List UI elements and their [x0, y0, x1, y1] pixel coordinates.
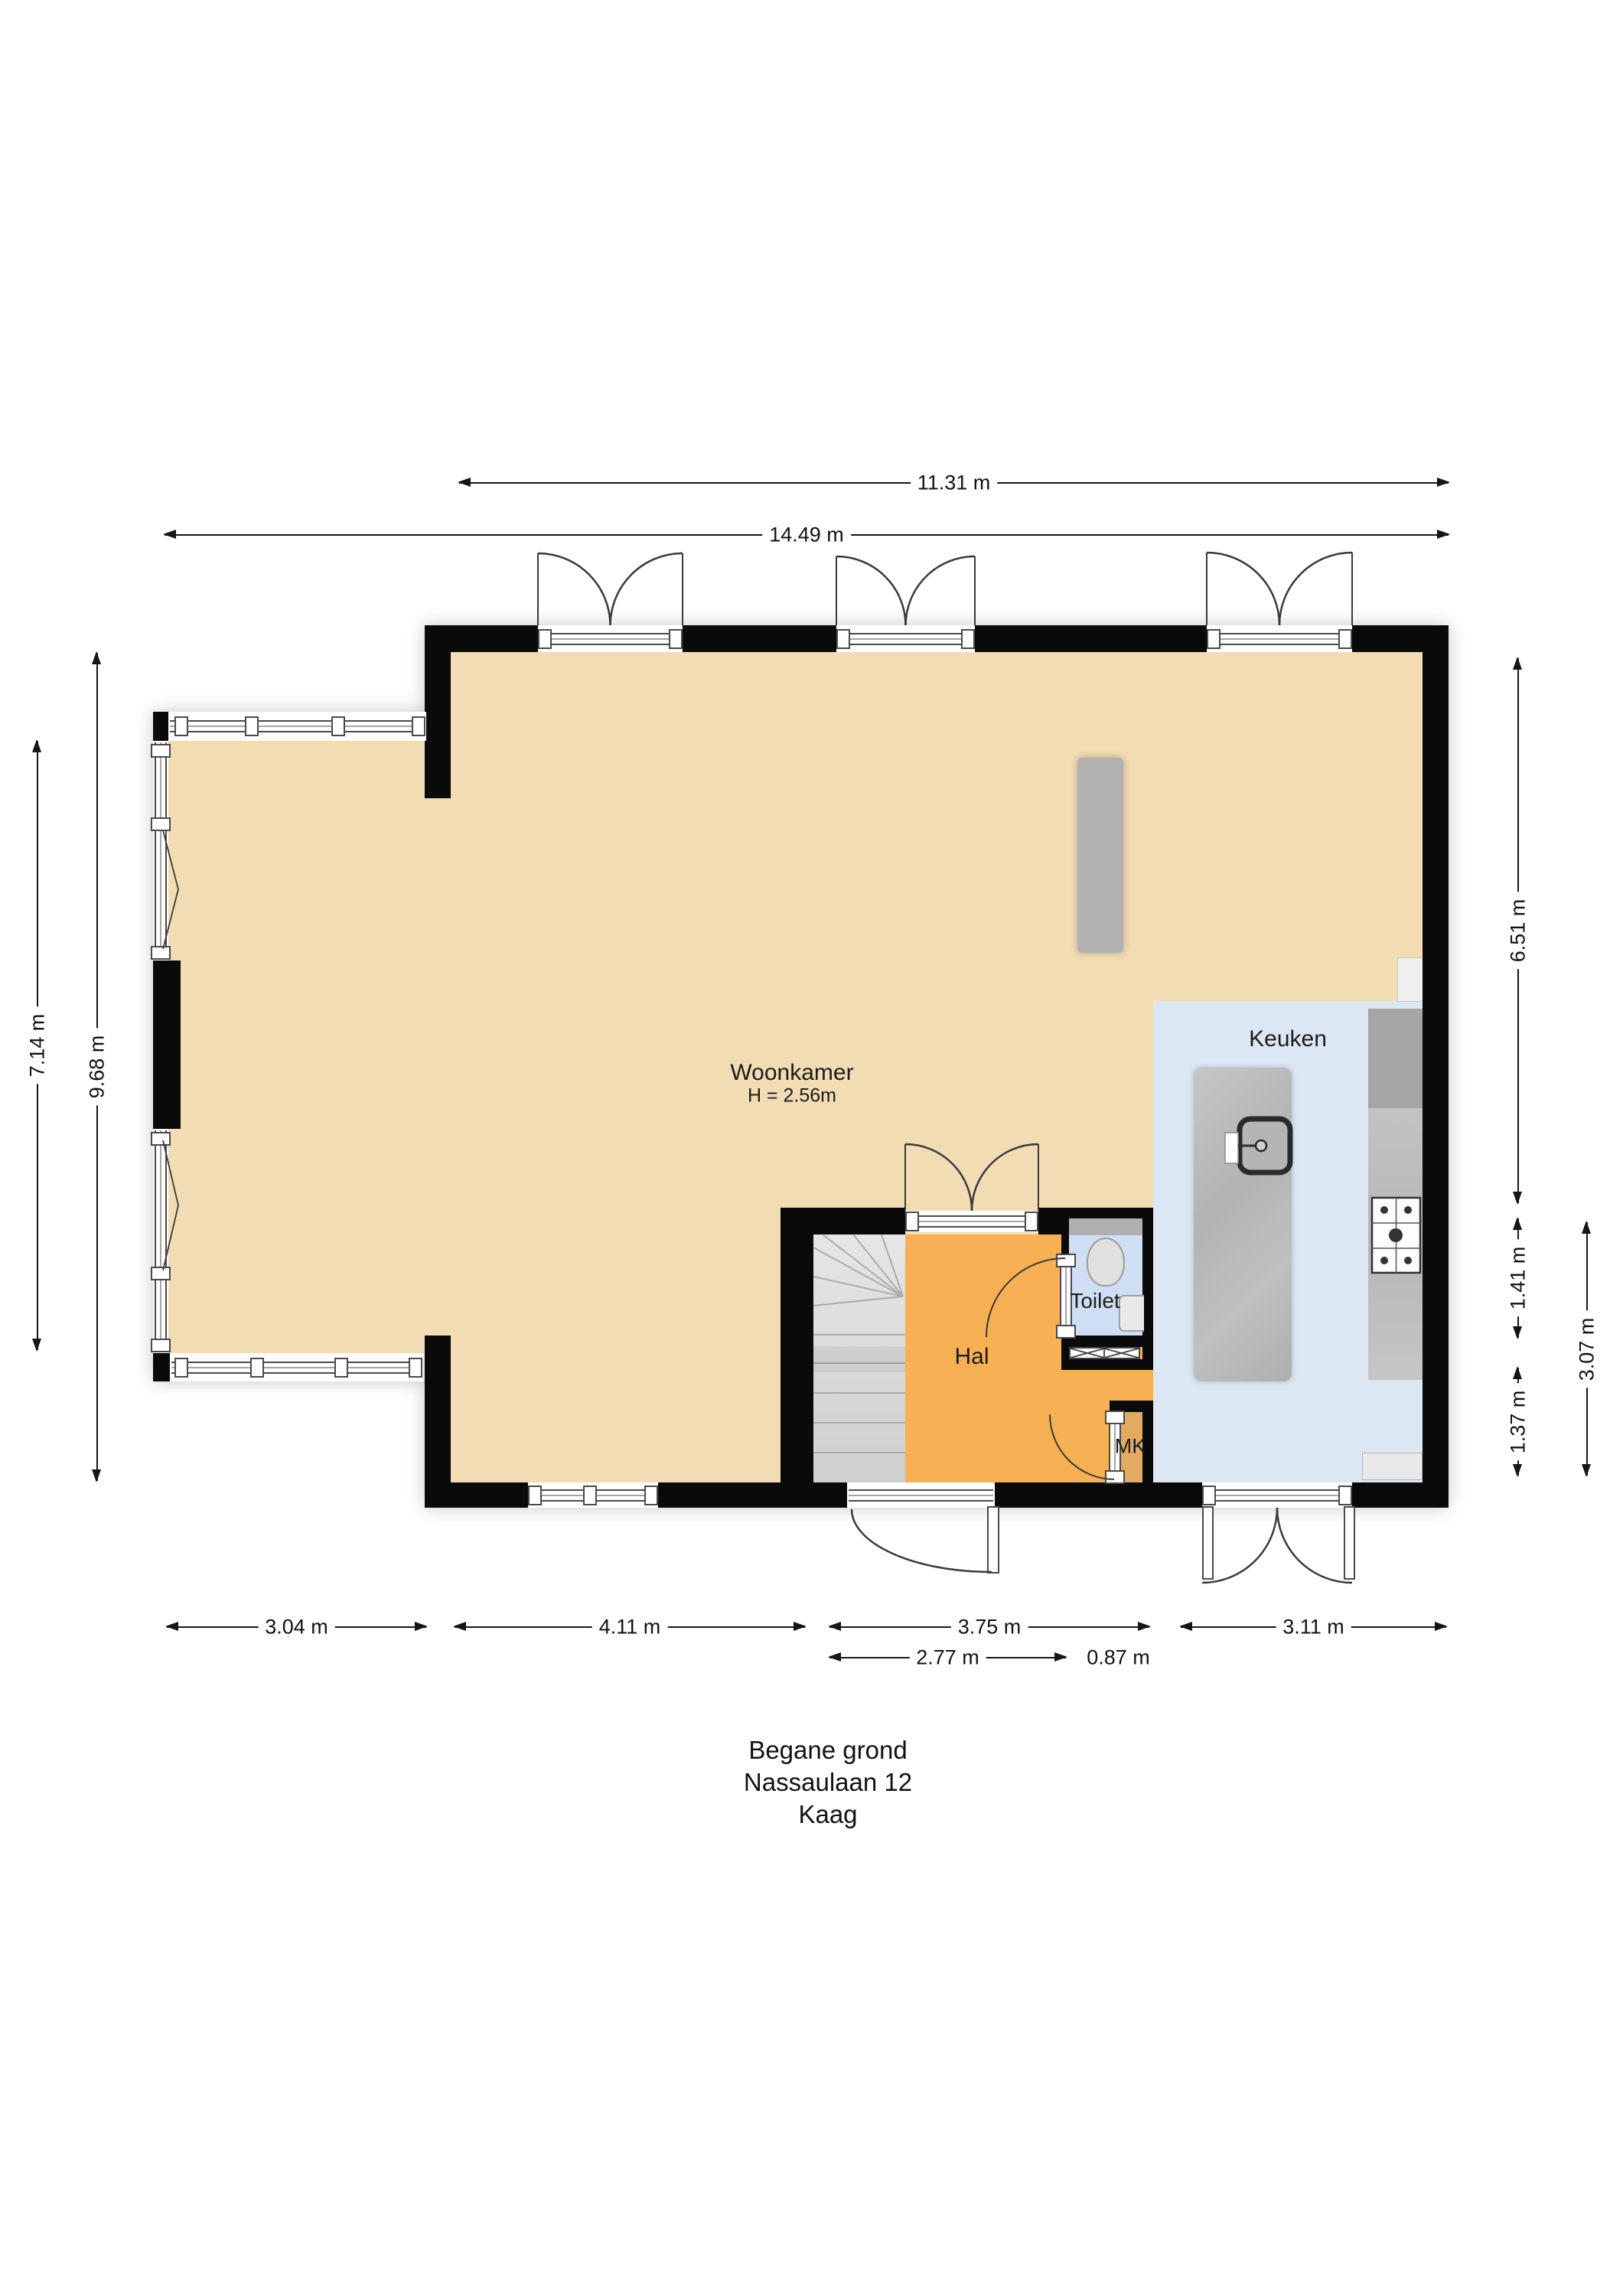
plan-city: Kaag — [798, 1800, 857, 1829]
annex-left-window-upper — [153, 741, 168, 960]
entrance-door-leaf — [987, 1506, 999, 1574]
window-glazing — [155, 742, 167, 959]
french-door-top-1 — [538, 625, 683, 652]
dimension-label: 0.87 m — [1080, 1645, 1157, 1671]
radiator — [1397, 957, 1424, 1002]
arrowhead — [453, 1622, 466, 1631]
woonkamer-label: Woonkamer — [730, 1060, 853, 1086]
fridge-counter — [1368, 1009, 1423, 1108]
toilet-door — [1061, 1255, 1071, 1337]
arrowhead — [92, 651, 101, 664]
arrowhead — [1054, 1652, 1067, 1662]
door-swing-arc — [1279, 553, 1352, 625]
arrowhead — [163, 530, 176, 539]
dimension-right-mid: 1.41 m — [1517, 1218, 1519, 1338]
window-mullion — [528, 1486, 542, 1505]
arrowhead — [1513, 1366, 1522, 1379]
arrowhead — [32, 1339, 41, 1352]
window-mullion — [409, 1358, 422, 1378]
window-mullion — [151, 1339, 171, 1352]
french-door-top-2 — [836, 625, 975, 652]
annex-floor — [168, 741, 451, 1353]
hal-top-wall-right — [1038, 1208, 1061, 1234]
door-jamb — [1056, 1254, 1076, 1267]
toilet-label: Toilet — [1070, 1289, 1119, 1313]
door-swing-arc — [611, 553, 683, 625]
arrowhead — [1513, 657, 1522, 670]
dimension-label: 7.14 m — [25, 1007, 51, 1084]
toilet-right-wall — [1142, 1208, 1153, 1370]
window-mullion — [334, 1358, 348, 1378]
annex-top-window — [168, 712, 426, 741]
dimension-label: 3.07 m — [1575, 1310, 1600, 1388]
dimension-label: 3.04 m — [258, 1615, 335, 1640]
french-door-bottom — [1202, 1482, 1352, 1508]
window-mullion — [583, 1486, 597, 1505]
hal-double-door — [905, 1211, 1038, 1232]
arrowhead — [415, 1622, 428, 1631]
door-swing-arc — [1277, 1508, 1352, 1583]
dimension-label: 11.31 m — [911, 471, 998, 496]
left-wall-lower — [425, 1336, 451, 1508]
dimension-label: 3.75 m — [951, 1615, 1028, 1640]
dimension-label: 6.51 m — [1506, 892, 1531, 970]
arrowhead — [1513, 1217, 1522, 1230]
window-mullion — [151, 946, 171, 960]
arrowhead — [1582, 1221, 1591, 1234]
arrowhead — [1513, 1192, 1522, 1205]
chimney-column — [1077, 758, 1123, 953]
mk-label: MK — [1115, 1435, 1146, 1459]
door-threshold — [1204, 1489, 1351, 1502]
window-mullion — [412, 716, 425, 736]
door-threshold — [849, 1489, 993, 1502]
arrowhead — [1513, 1326, 1522, 1339]
arrowhead — [1582, 1464, 1591, 1477]
window-mullion — [151, 1267, 171, 1280]
arrowhead — [458, 478, 471, 487]
door-threshold — [907, 1215, 1037, 1228]
toilet-lower-wall — [1061, 1359, 1142, 1370]
dimension-label: 4.11 m — [592, 1615, 668, 1640]
dimension-label: 14.49 m — [762, 523, 851, 548]
dimension-label: 1.41 m — [1506, 1240, 1531, 1317]
door-swing-arc — [852, 1509, 992, 1572]
toilet-bowl — [1087, 1238, 1125, 1287]
right-wall — [1423, 625, 1449, 1508]
arrowhead — [1179, 1622, 1192, 1631]
arrowhead — [1435, 1622, 1448, 1631]
dimension-bottom-sub-2: 0.87 m — [1081, 1657, 1155, 1658]
arrowhead — [1513, 1464, 1522, 1477]
plan-title: Begane grond — [748, 1736, 907, 1765]
arrowhead — [1437, 478, 1450, 487]
crawl-hatch — [1069, 1347, 1140, 1359]
dimension-bottom-sub-1: 2.77 m — [829, 1657, 1066, 1658]
dimension-left-inner: 7.14 m — [37, 741, 38, 1350]
door-jamb — [836, 629, 850, 649]
left-wall-upper — [425, 625, 451, 798]
floor-plan-page: Woonkamer H = 2.56m Keuken Hal Toilet MK… — [0, 0, 1623, 2296]
window-mullion — [151, 744, 171, 758]
french-door-leaf-left — [1202, 1506, 1214, 1580]
door-jamb — [1207, 629, 1221, 649]
door-jamb — [538, 629, 552, 649]
toilet-top-wall — [1061, 1208, 1153, 1218]
window-glazing — [170, 720, 425, 732]
window-mullion — [644, 1486, 658, 1505]
stairs-left-wall — [781, 1208, 813, 1482]
arrowhead — [32, 739, 41, 752]
annex-corner-bottom — [153, 1353, 170, 1381]
door-swing-arc — [538, 553, 611, 625]
door-jamb — [1338, 1486, 1352, 1505]
annex-bottom-window — [170, 1353, 423, 1381]
window-glazing — [155, 1130, 167, 1352]
window-mullion — [174, 716, 188, 736]
dimension-bottom-1: 3.04 m — [167, 1626, 426, 1628]
dimension-top-outer: 14.49 m — [165, 534, 1449, 536]
entrance-opening — [847, 1482, 995, 1508]
door-jamb — [669, 629, 683, 649]
arrowhead — [165, 1622, 178, 1631]
kitchen-island — [1194, 1068, 1292, 1381]
stairs — [813, 1234, 905, 1482]
arrowhead — [794, 1622, 807, 1631]
dimension-left-outer: 9.68 m — [96, 653, 98, 1481]
door-jamb — [1202, 1486, 1216, 1505]
arrowhead — [828, 1652, 841, 1662]
door-threshold — [838, 633, 973, 645]
dimension-label: 1.37 m — [1506, 1383, 1531, 1460]
annex-corner-top — [153, 712, 168, 741]
dimension-label: 2.77 m — [909, 1645, 986, 1671]
toilet-cistern — [1069, 1218, 1142, 1235]
door-threshold — [539, 633, 681, 645]
arrowhead — [1437, 530, 1450, 539]
french-door-top-3 — [1207, 625, 1352, 652]
door-swing-arc — [1207, 553, 1279, 625]
dimension-bottom-2: 4.11 m — [455, 1626, 805, 1628]
dimension-top-inner: 11.31 m — [459, 482, 1449, 484]
window-mullion — [331, 716, 345, 736]
annex-left-window-lower — [153, 1129, 168, 1353]
woonkamer-height-label: H = 2.56m — [748, 1085, 836, 1107]
door-jamb — [1025, 1212, 1038, 1231]
window-mullion — [250, 1358, 264, 1378]
dimension-label: 9.68 m — [85, 1029, 110, 1106]
annex-mid-pier — [153, 960, 181, 1129]
arrowhead — [1138, 1622, 1151, 1631]
door-threshold — [1208, 633, 1351, 645]
keuken-label: Keuken — [1249, 1026, 1327, 1052]
dimension-right-top: 6.51 m — [1517, 658, 1519, 1203]
window-mullion — [151, 817, 171, 831]
door-jamb — [1338, 629, 1352, 649]
french-door-leaf-right — [1344, 1506, 1355, 1580]
door-swing-arc — [836, 556, 906, 625]
hal-top-wall-left — [781, 1208, 905, 1234]
door-jamb — [1105, 1470, 1125, 1484]
dimension-bottom-4: 3.11 m — [1181, 1626, 1446, 1628]
door-jamb — [961, 629, 975, 649]
door-jamb — [1056, 1325, 1076, 1339]
door-swing-arc — [906, 556, 976, 625]
bottom-window — [528, 1482, 658, 1508]
window-mullion — [245, 716, 259, 736]
dimension-right-low: 1.37 m — [1517, 1368, 1519, 1476]
dimension-label: 3.11 m — [1276, 1615, 1351, 1640]
window-glazing — [171, 1362, 422, 1374]
dimension-bottom-3: 3.75 m — [829, 1626, 1149, 1628]
arrowhead — [828, 1622, 841, 1631]
plan-address: Nassaulaan 12 — [744, 1768, 912, 1797]
hal-label: Hal — [954, 1344, 989, 1370]
window-mullion — [174, 1358, 188, 1378]
washbasin — [1119, 1295, 1144, 1332]
window-mullion — [151, 1132, 171, 1146]
door-jamb — [905, 1212, 919, 1231]
kitchen-counter — [1368, 1108, 1423, 1380]
door-jamb — [1105, 1411, 1125, 1424]
kitchen-appliance — [1362, 1453, 1423, 1480]
dimension-right-outer: 3.07 m — [1586, 1222, 1588, 1476]
arrowhead — [92, 1469, 101, 1482]
